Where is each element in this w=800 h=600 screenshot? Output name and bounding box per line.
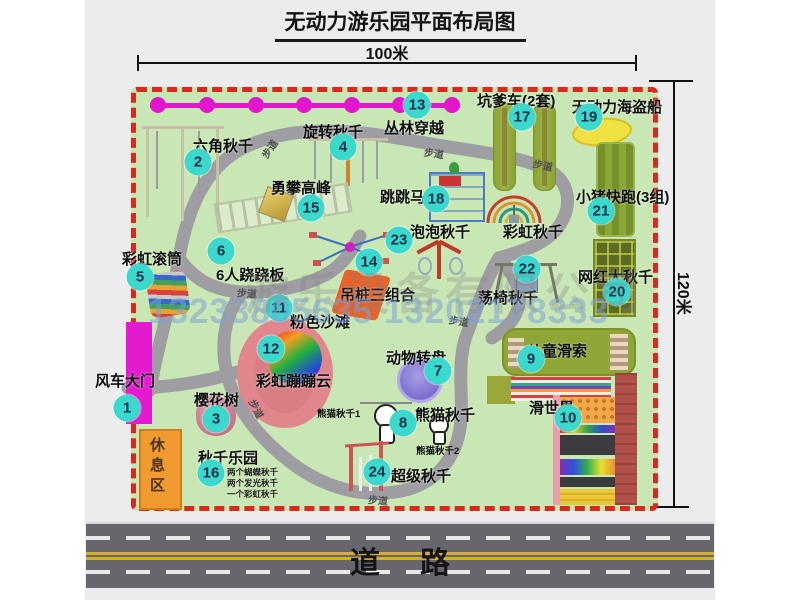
item-1-badge: 1 <box>114 395 141 422</box>
item-13-label: 丛林穿越 <box>384 117 444 138</box>
zipline-dot-4 <box>344 97 360 113</box>
item-17-badge: 17 <box>509 104 536 131</box>
item-10-badge: 10 <box>555 405 582 432</box>
item-8-badge: 8 <box>390 410 417 437</box>
zipline-dot-2 <box>248 97 264 113</box>
item-14-label: 吊桩三组合 <box>340 284 415 305</box>
zipline-dot-3 <box>296 97 312 113</box>
zipline-dot-6 <box>444 97 460 113</box>
item-11-label: 粉色沙滩 <box>290 311 350 332</box>
item-16-badge: 16 <box>198 460 225 487</box>
zipline-dot-0 <box>150 97 166 113</box>
label-panda-swing-1: 熊猫秋千1 <box>317 406 360 420</box>
kengdie-car-2-illustration <box>533 103 556 191</box>
item-8-label: 熊猫秋千 <box>415 404 475 425</box>
path-label-1: 步道 <box>423 144 445 162</box>
item-22-label: 荡椅秋千 <box>478 287 538 308</box>
item-9-badge: 9 <box>518 346 545 373</box>
item-16-sub-2: 一个彩虹秋千 <box>227 488 278 500</box>
label-panda-swing-2: 熊猫秋千2 <box>416 443 459 457</box>
playground-plan-image: 无动力游乐园平面布局图 100米 120米 <box>0 0 800 600</box>
item-12-label: 彩虹蹦蹦云 <box>256 370 331 391</box>
label-rainbow-swing: 彩虹秋千 <box>503 221 563 242</box>
item-22-badge: 22 <box>514 256 541 283</box>
item-14-badge: 14 <box>356 249 383 276</box>
zipline-dot-1 <box>199 97 215 113</box>
item-6-label: 6人跷跷板 <box>216 264 284 285</box>
item-11-badge: 11 <box>266 295 293 322</box>
item-21-badge: 21 <box>588 198 615 225</box>
item-3-badge: 3 <box>203 406 230 433</box>
item-15-label: 勇攀高峰 <box>271 177 331 198</box>
item-18-label: 跳跳马 <box>380 186 425 207</box>
item-24-label: 超级秋千 <box>391 465 451 486</box>
item-7-badge: 7 <box>425 358 452 385</box>
path-label-4: 步道 <box>448 311 470 329</box>
item-5-badge: 5 <box>127 264 154 291</box>
item-23-badge: 23 <box>386 227 413 254</box>
item-20-badge: 20 <box>604 279 631 306</box>
item-24-badge: 24 <box>364 459 391 486</box>
item-4-badge: 4 <box>330 134 357 161</box>
item-15-badge: 15 <box>298 195 325 222</box>
item-2-badge: 2 <box>185 149 212 176</box>
item-18-badge: 18 <box>423 186 450 213</box>
bubble-swing-illustration <box>416 239 462 281</box>
item-1-label: 风车大门 <box>95 370 155 391</box>
item-19-badge: 19 <box>576 104 603 131</box>
path-label-6: 步道 <box>367 491 388 508</box>
rainbow-swing-illustration <box>484 183 544 225</box>
item-6-badge: 6 <box>208 238 235 265</box>
path-label-3: 步道 <box>237 284 258 300</box>
item-12-badge: 12 <box>258 336 285 363</box>
label-rest-area: 休息区 <box>146 437 167 497</box>
item-13-badge: 13 <box>404 92 431 119</box>
slide-world-illustration <box>487 371 637 511</box>
item-23-label: 泡泡秋千 <box>410 221 470 242</box>
